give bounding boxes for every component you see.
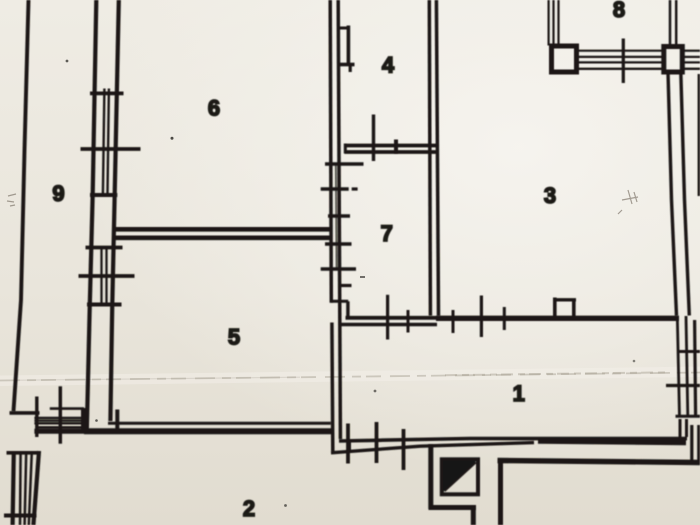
- svg-text:9: 9: [52, 181, 64, 206]
- svg-text:6: 6: [208, 95, 220, 120]
- svg-text:8: 8: [613, 0, 625, 22]
- svg-text:1: 1: [513, 381, 525, 406]
- svg-text:5: 5: [228, 324, 240, 349]
- svg-text:7: 7: [381, 221, 393, 246]
- svg-text:4: 4: [382, 52, 395, 77]
- svg-text:2: 2: [243, 496, 255, 521]
- svg-text:3: 3: [544, 183, 556, 208]
